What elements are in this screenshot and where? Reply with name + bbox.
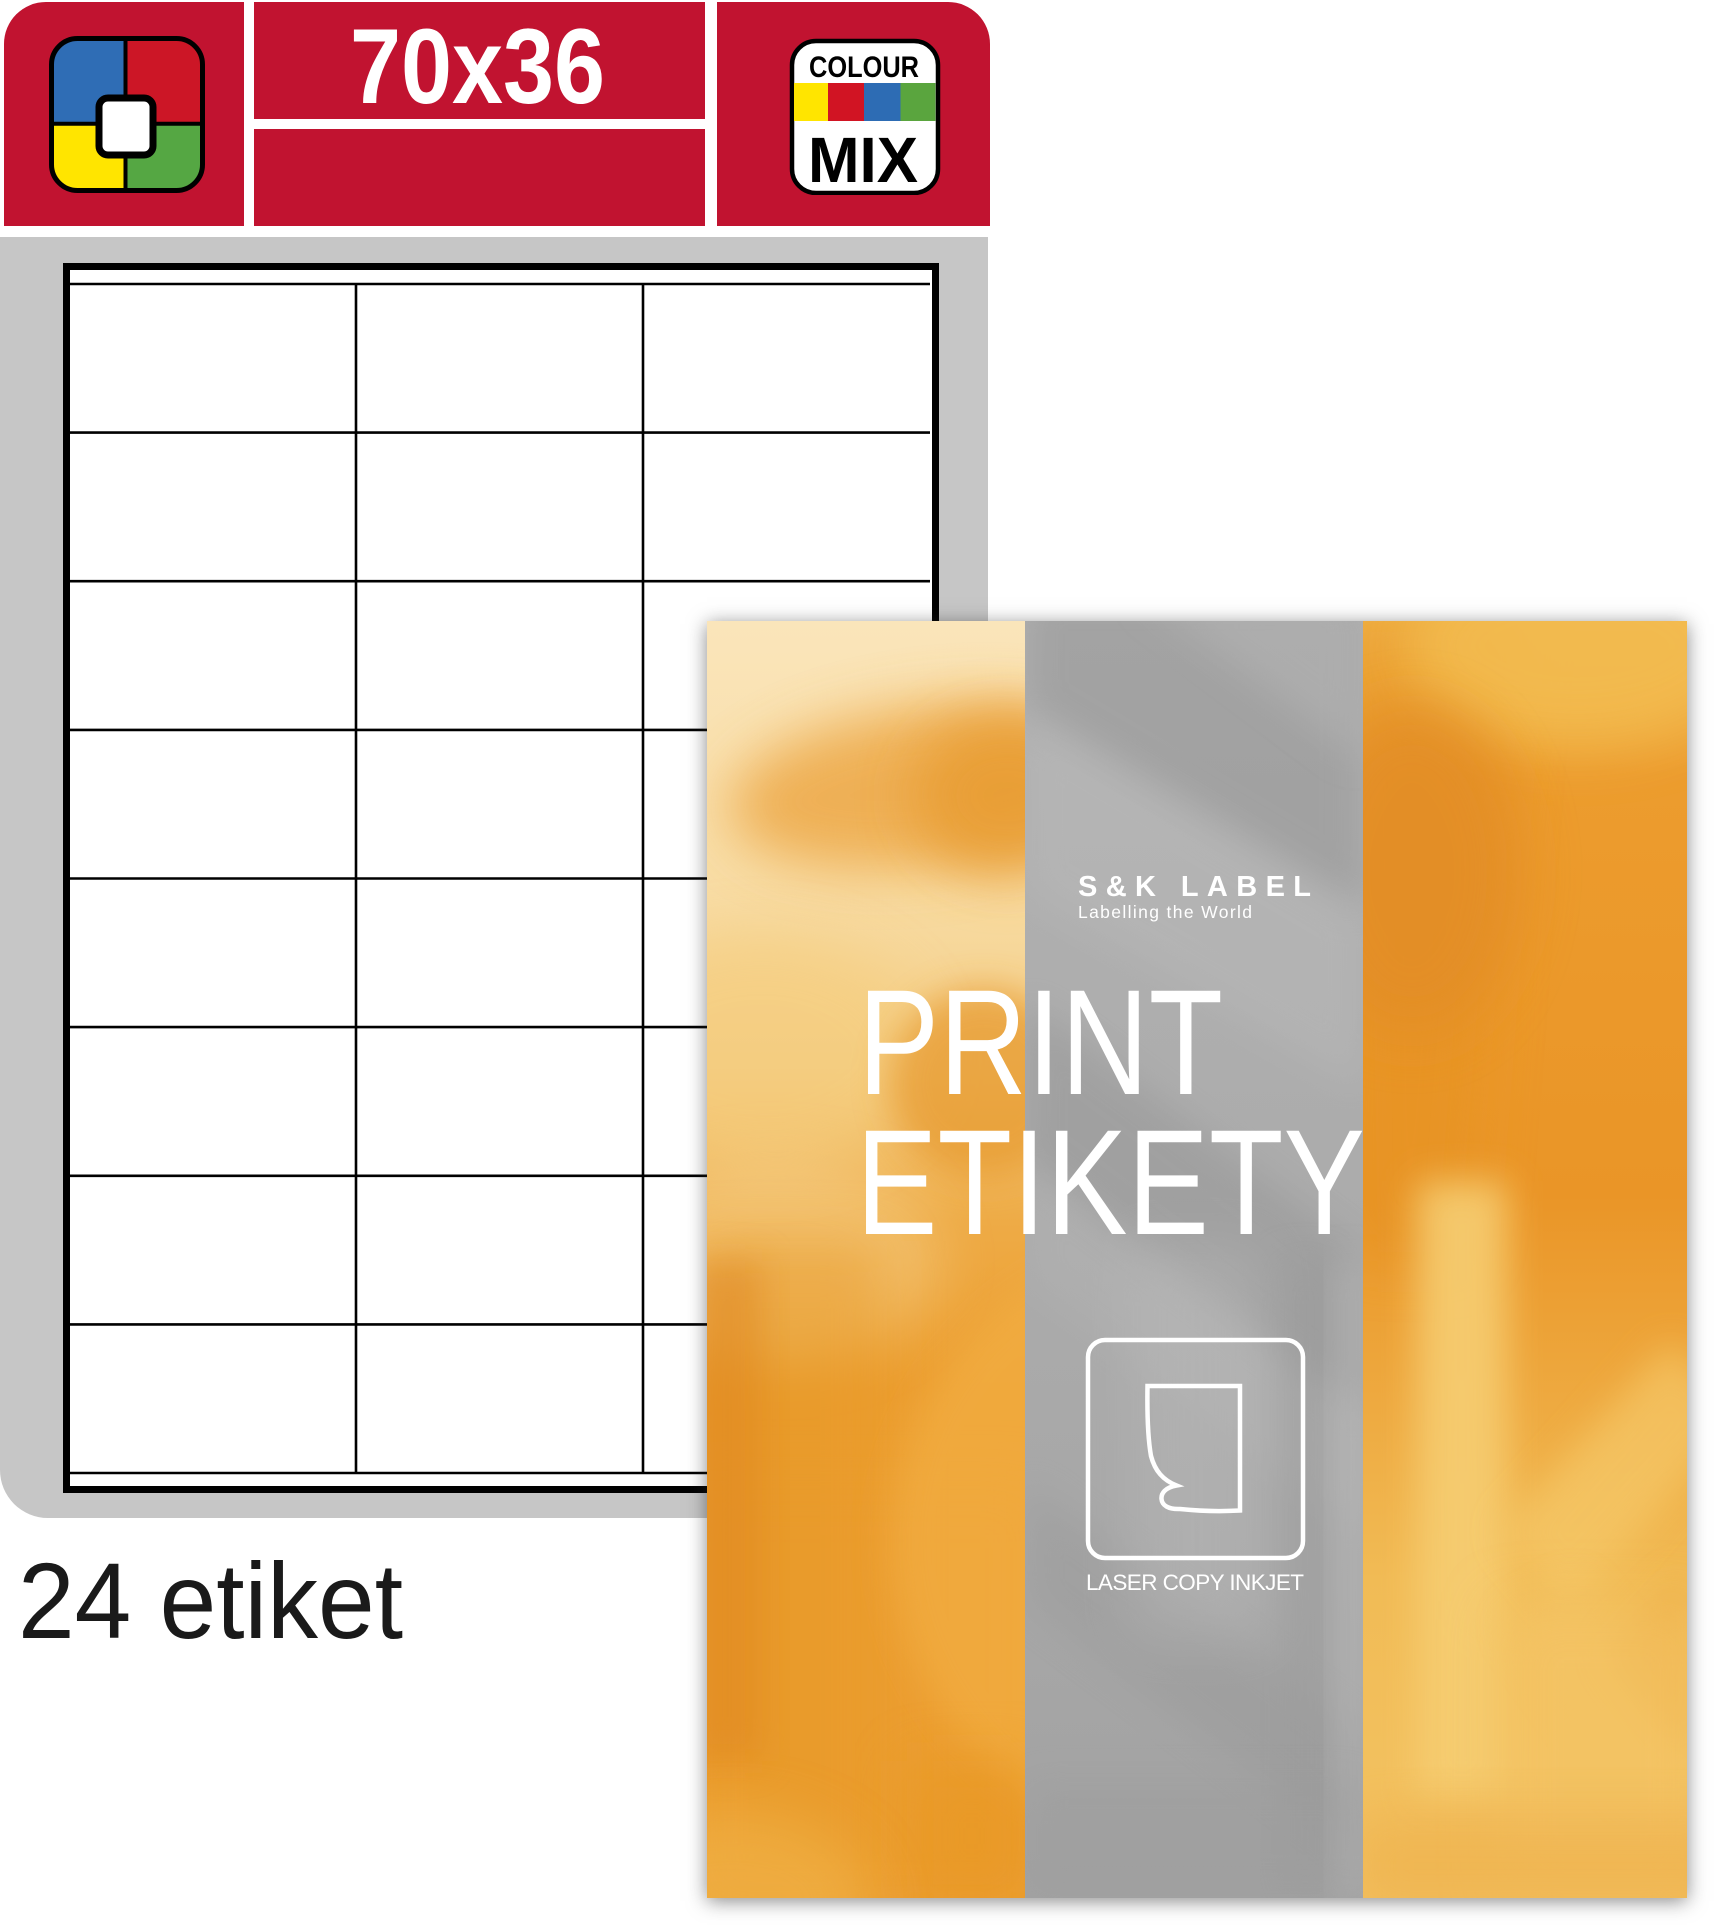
svg-text:Labelling the World: Labelling the World	[1078, 902, 1252, 922]
svg-text:MIX: MIX	[808, 124, 918, 195]
svg-text:70x36: 70x36	[350, 6, 605, 126]
svg-text:24 etiket: 24 etiket	[18, 1540, 403, 1661]
svg-text:COLOUR: COLOUR	[809, 51, 919, 84]
svg-text:LASER COPY INKJET: LASER COPY INKJET	[1086, 1570, 1304, 1595]
svg-text:S&K LABEL: S&K LABEL	[1078, 871, 1311, 903]
svg-text:ETIKETY: ETIKETY	[856, 1098, 1365, 1266]
